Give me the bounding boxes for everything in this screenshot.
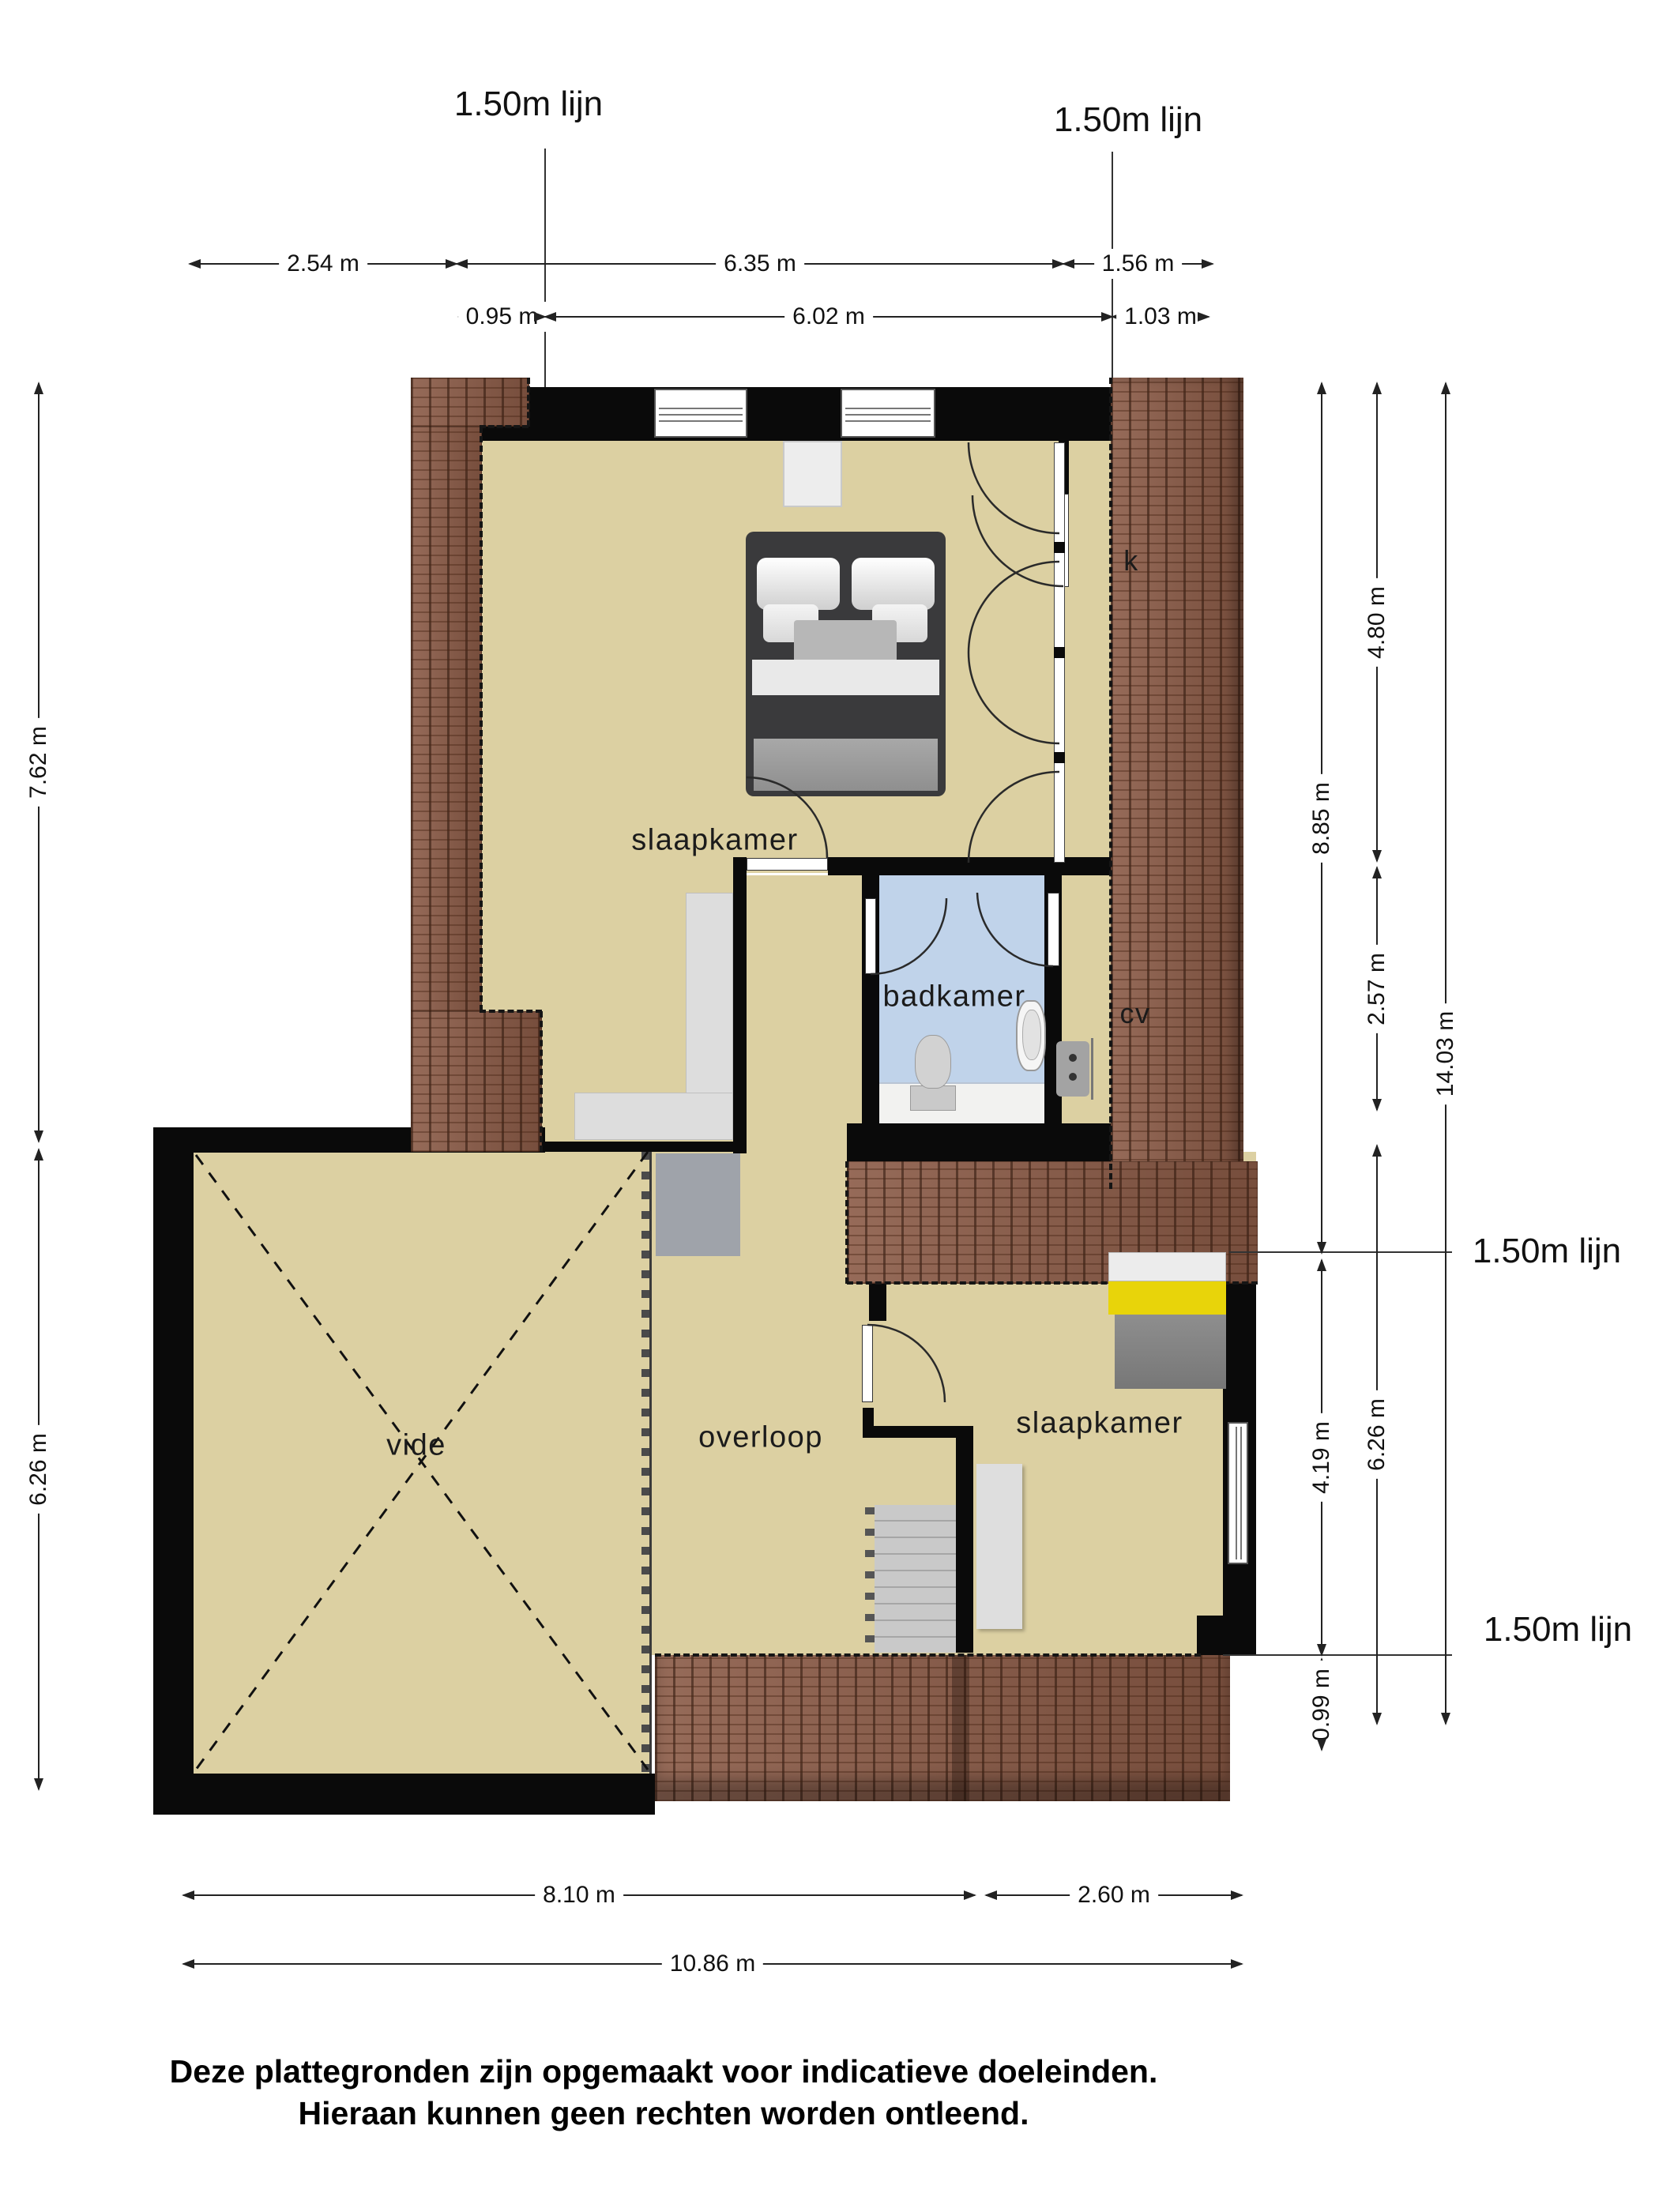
dim-095: 0.95 m (459, 316, 545, 318)
room-label-cv: cv (1120, 997, 1151, 1030)
dim-254: 2.54 m (190, 263, 457, 265)
line-150-bottom-right (1223, 1654, 1452, 1656)
disclaimer-line-2: Hieraan kunnen geen rechten worden ontle… (79, 2093, 1248, 2135)
room-label-slaapkamer-main: slaapkamer (631, 824, 798, 858)
wardrobe-arc-4 (969, 772, 1059, 863)
dim-885: 8.85 m (1321, 383, 1322, 1253)
dim-480: 4.80 m (1376, 383, 1378, 861)
wardrobe-arc-1 (969, 442, 1059, 533)
label-150-mid-right: 1.50m lijn (1473, 1232, 1621, 1271)
dim-762: 7.62 m (38, 383, 39, 1142)
dim-label: 0.99 m (1307, 1661, 1337, 1749)
room-label-slaapkamer-2: slaapkamer (1016, 1407, 1183, 1441)
dim-1403: 14.03 m (1445, 383, 1446, 1724)
door-arc-bedroom2 (867, 1325, 945, 1402)
dim-1086: 10.86 m (183, 1963, 1242, 1965)
dim-label: 6.26 m (24, 1425, 54, 1514)
room-label-vide: vide (386, 1429, 446, 1463)
dim-label: 10.86 m (662, 1949, 763, 1979)
label-150-top-right: 1.50m lijn (1054, 100, 1202, 140)
dim-419: 4.19 m (1321, 1260, 1322, 1655)
line-150-mid-right (1229, 1251, 1452, 1253)
dim-626-right: 6.26 m (1376, 1145, 1378, 1724)
dim-156: 1.56 m (1063, 263, 1213, 265)
dim-099: 0.99 m (1321, 1659, 1322, 1750)
dim-103: 1.03 m (1112, 316, 1209, 318)
plan-linework (0, 0, 1659, 2212)
label-150-bottom-right: 1.50m lijn (1484, 1610, 1632, 1650)
dim-label: 2.60 m (1070, 1880, 1158, 1910)
dim-label: 2.54 m (279, 249, 367, 279)
room-label-badkamer: badkamer (883, 980, 1026, 1014)
door-arc-badkamer-right (977, 893, 1053, 966)
dim-label: 0.95 m (458, 302, 547, 332)
dim-label: 1.56 m (1094, 249, 1183, 279)
dim-label: 8.10 m (535, 1880, 623, 1910)
dim-label: 1.03 m (1116, 302, 1205, 332)
label-150-top-left: 1.50m lijn (454, 85, 603, 124)
dim-label: 4.80 m (1362, 578, 1392, 667)
dim-810: 8.10 m (183, 1894, 975, 1896)
dim-260: 2.60 m (986, 1894, 1242, 1896)
dim-label: 4.19 m (1307, 1413, 1337, 1502)
dim-label: 6.26 m (1362, 1390, 1392, 1479)
wardrobe-arc-2 (969, 562, 1059, 653)
dim-257: 2.57 m (1376, 867, 1378, 1110)
dim-label: 6.02 m (784, 302, 873, 332)
floorplan-page: 1.50m lijn 1.50m lijn 1.50m lijn 1.50m l… (0, 0, 1659, 2212)
door-arc-badkamer-left (871, 898, 946, 974)
dim-626-left: 6.26 m (38, 1149, 39, 1789)
dim-label: 8.85 m (1307, 774, 1337, 863)
disclaimer: Deze plattegronden zijn opgemaakt voor i… (79, 2051, 1248, 2135)
room-label-k: k (1123, 544, 1139, 577)
dim-602: 6.02 m (545, 316, 1112, 318)
line-150-top-left (544, 149, 546, 387)
wardrobe-arc-3 (969, 653, 1059, 743)
dim-label: 2.57 m (1362, 945, 1392, 1033)
dim-label: 7.62 m (24, 718, 54, 807)
dim-label: 6.35 m (716, 249, 804, 279)
dim-635: 6.35 m (457, 263, 1063, 265)
dim-label: 14.03 m (1431, 1003, 1461, 1104)
room-label-overloop: overloop (698, 1421, 823, 1455)
disclaimer-line-1: Deze plattegronden zijn opgemaakt voor i… (79, 2051, 1248, 2093)
